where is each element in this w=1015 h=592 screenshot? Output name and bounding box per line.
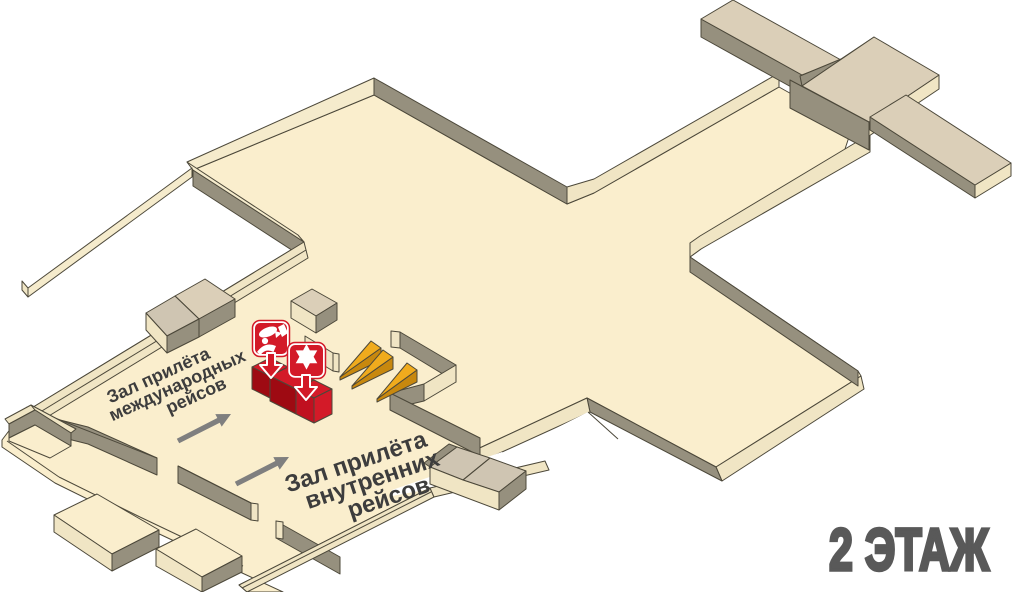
svg-text:2 ЭТАЖ: 2 ЭТАЖ <box>829 517 989 583</box>
